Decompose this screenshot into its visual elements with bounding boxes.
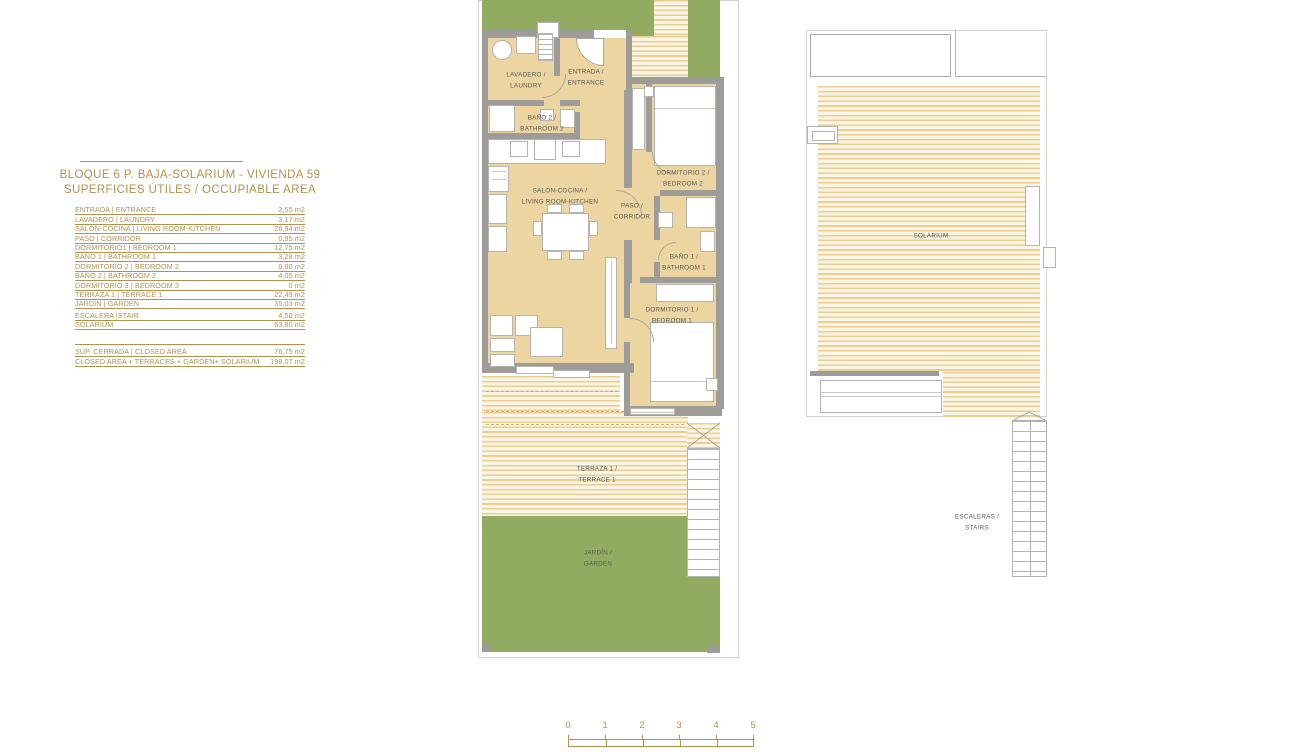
label-line: BATHROOM 1 [662,263,706,274]
label-line: SOLARIUM [914,230,949,241]
toilet-icon [700,231,715,252]
room-label-solarium: SOLARIUM [914,230,949,241]
room-label-entrada: ENTRADA / ENTRANCE [568,67,605,90]
window [630,408,675,415]
kitchen-sink-icon [510,141,528,157]
wardrobe [632,88,645,150]
parapet-wall [810,371,939,376]
terrace-slider-window [553,370,590,378]
wall-niche [1025,186,1040,246]
label-line: BAÑO 2 / [520,113,564,124]
label-line: DORMITORIO 1 / [645,305,698,316]
label-line: ENTRANCE [568,78,605,89]
garden-area-bottom [482,516,688,652]
chair-icon [547,251,562,260]
window-marker [1043,247,1056,268]
row-label: ESCALERA |STAIR [75,311,139,320]
row-value: 76,75 m2 [274,347,305,356]
room-label-salon: SALÓN-COCINA / LIVING ROOM-KITCHEN [522,186,598,209]
scale-divider [606,740,607,746]
scale-number: 2 [639,720,644,731]
row-value: 26,94 m2 [274,224,305,233]
row-value: 9,90 m2 [278,262,305,271]
areas-table: ENTRADA | ENTRANCE2,55 m2 LAVADERO | LAU… [75,206,305,330]
coffee-table [530,327,563,357]
row-label: BAÑO 1 | BATHROOM 1 [75,252,156,261]
row-value: 22,49 m2 [274,290,305,299]
wall [716,77,724,409]
roof-divider [955,30,956,77]
row-value: 63,80 m2 [274,320,305,329]
solarium-stairs [1012,420,1047,577]
room-label-dormitorio1: DORMITORIO 1 / BEDROOM 1 [645,305,698,328]
row-label: DORMITORIO1 | BEDROOM 1 [75,243,177,252]
nightstand [644,86,654,97]
table-row: JARDÍN | GARDEN35,03 m2 [75,300,305,309]
wall-vent-box [807,126,838,144]
shower-icon [489,105,515,132]
walkway-hatch-top [654,0,688,36]
sofa-seat [490,354,515,367]
roof-box [810,34,951,77]
scale-divider [680,740,681,746]
room-label-jardin: JARDÍN / GARDEN [584,548,612,571]
label-line: PASO / [614,201,650,212]
row-label: DORMITORIO 3 | BEDROOM 3 [75,281,179,290]
label-line: ENTRADA / [568,67,605,78]
tv-unit [605,257,617,349]
floorplan-ground: LAVADERO / LAUNDRY ENTRADA / ENTRANCE BA… [478,0,740,660]
chair-icon [569,251,584,260]
row-value: 35,03 m2 [274,299,305,308]
sofa-seat [490,338,515,352]
terrace-dashed-line [486,424,684,425]
room-label-bano1: BAÑO 1 / BATHROOM 1 [662,252,706,275]
title-top-rule [80,161,243,162]
dishwasher-icon [534,139,556,160]
scale-divider [717,740,718,746]
roof-box-line [955,76,1047,77]
row-label: SUP. CERRADA | CLOSED AREA [75,347,187,356]
wall [630,77,722,84]
garden-area-bottom-right [688,577,720,652]
row-value: 2,55 m2 [278,205,305,214]
sink-icon [658,212,673,228]
terrace-hatch-upper [482,376,620,412]
row-label: ENTRADA | ENTRANCE [75,205,156,214]
room-label-escaleras: ESCALERAS / STAIRS [955,512,999,535]
solarium-hatch [818,86,1040,372]
label-line: SALÓN-COCINA / [522,186,598,197]
label-line: TERRAZA 1 / [577,464,618,475]
label-line: BAÑO 1 / [662,252,706,263]
walkway-hatch-entrance [632,36,688,77]
wall [660,190,722,196]
wall [624,342,630,406]
row-label: JARDÍN | GARDEN [75,299,139,308]
plan-title: BLOQUE 6 P. BAJA-SOLARIUM - VIVIENDA 59 … [25,168,355,198]
label-line: CORRIDOR [614,212,650,223]
wall [624,283,630,318]
floorplan-solarium: SOLARIUM ESCALERAS / STAIRS [806,30,1066,590]
kitchen-appliance-icon [562,141,580,157]
wall [640,277,722,283]
scale-number: 4 [713,720,718,731]
label-line: STAIRS [955,523,999,534]
bed-double [650,322,714,402]
scale-divider [643,740,644,746]
row-label: CLOSED AREA + TERRACES + GARDEN+ SOLARIU… [75,357,259,366]
plan-title-line1: BLOQUE 6 P. BAJA-SOLARIUM - VIVIENDA 59 [25,168,355,183]
row-value: 0 m2 [289,281,305,290]
stove-icon [488,166,509,192]
wardrobe [656,284,714,302]
row-label: SOLARIUM [75,320,113,329]
label-line: LIVING ROOM-KITCHEN [522,197,598,208]
row-value: 4,05 m2 [278,271,305,280]
row-label: BAÑO 2 | BATHROOM 2 [75,271,156,280]
label-line: LAVADERO / [506,70,545,81]
scale-bar-rect [568,739,754,747]
row-label: SALÓN-COCINA | LIVING ROOM-KITCHEN [75,224,220,233]
garden-stairs [687,448,720,577]
wall [560,100,580,106]
label-line: GARDEN [584,559,612,570]
row-value: 198,07 m2 [270,357,305,366]
boundary-pillar [482,643,490,652]
row-value: 0,95 m2 [278,234,305,243]
scale-number: 5 [750,720,755,731]
label-line: LAUNDRY [506,81,545,92]
row-label: PASO | CORRIDOR [75,234,141,243]
scale-number: 1 [602,720,607,731]
row-value: 3,28 m2 [278,252,305,261]
label-line: TERRACE 1 [577,475,618,486]
label-line: JARDÍN / [584,548,612,559]
scale-number: 0 [565,720,570,731]
nightstand [706,378,718,391]
row-value: 12,75 m2 [274,243,305,252]
row-label: LAVADERO | LAUNDRY [75,215,155,224]
row-value: 3,17 m2 [278,215,305,224]
cabinet-icon [488,226,507,252]
wall [624,90,632,188]
row-value: 4,50 m2 [278,311,305,320]
scale-number: 3 [676,720,681,731]
room-label-paso: PASO / CORRIDOR [614,201,650,224]
entrance-door-opening [594,30,626,38]
chair-icon [589,221,598,236]
plan-title-line2: SUPERFICIES ÚTILES / OCCUPIABLE AREA [25,183,355,198]
row-label: TERRAZA 1 | TERRACE 1 [75,290,162,299]
summary-table: SUP. CERRADA | CLOSED AREA76,75 m2 CLOSE… [75,344,305,367]
terrace-dashed-line [486,391,618,392]
terrace-slider-window [516,366,554,374]
label-line: ESCALERAS / [955,512,999,523]
scale-bar: 0 1 2 3 4 5 [560,718,770,753]
boundary-pillar [707,645,720,653]
room-label-lavadero: LAVADERO / LAUNDRY [506,70,545,93]
label-line: DORMITORIO 2 / [656,168,709,179]
garden-area-top-right [688,0,720,77]
dining-table [542,213,589,251]
label-line: BATHROOM 2 [520,124,564,135]
shower-icon [686,197,716,228]
chair-icon [533,221,542,236]
fridge-icon [488,194,507,224]
boiler-icon [538,33,553,61]
wall [624,240,632,283]
washer-icon [516,36,536,54]
summary-row: CLOSED AREA + TERRACES + GARDEN+ SOLARIU… [75,357,305,366]
row-label: DORMITORIO 2 | BEDROOM 2 [75,262,179,271]
table-row: SOLARIUM63,80 m2 [75,321,305,330]
label-line: BEDROOM 1 [645,316,698,327]
room-label-terraza: TERRAZA 1 / TERRACE 1 [577,464,618,487]
room-label-bano2: BAÑO 2 / BATHROOM 2 [520,113,564,136]
bench-planter [820,380,942,413]
stair-landing-cross [687,423,720,448]
sofa-cushion [490,315,513,336]
room-label-dormitorio2: DORMITORIO 2 / BEDROOM 2 [656,168,709,191]
laundry-basin-icon [492,40,512,60]
label-line: BEDROOM 2 [656,179,709,190]
